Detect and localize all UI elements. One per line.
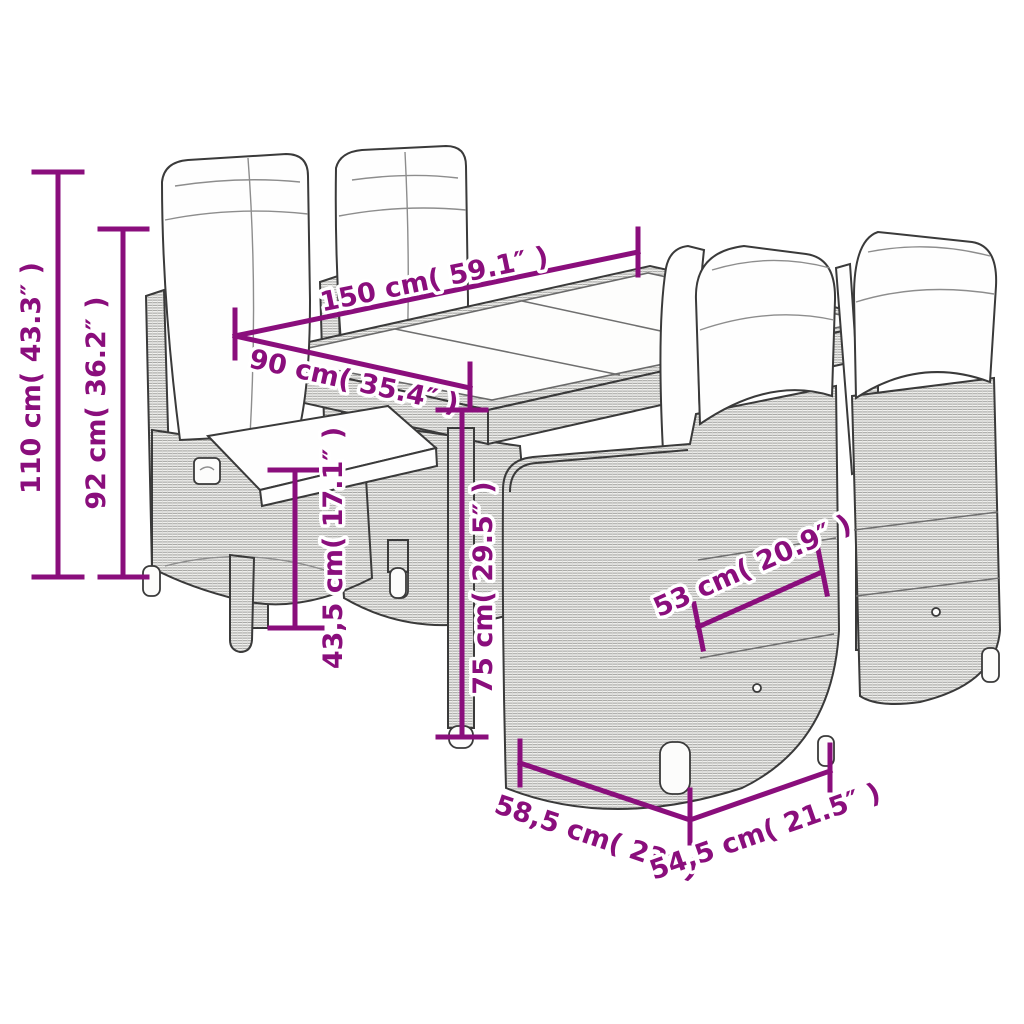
diagram-canvas: 110 cm( 43.3″ ) 92 cm( 36.2″ ) 150 cm( 5… xyxy=(0,0,1024,1024)
furniture-illustration xyxy=(143,146,1000,809)
chair-back-right xyxy=(836,232,1000,704)
dimension-label: 92 cm( 36.2″ ) xyxy=(81,296,112,509)
dimension-backrest-height: 92 cm( 36.2″ ) xyxy=(81,229,147,577)
screw-dot xyxy=(753,684,761,692)
chair-front-left-leg xyxy=(230,555,254,652)
dimension-label: 75 cm( 29.5″ ) xyxy=(468,481,499,694)
dimension-label: 110 cm( 43.3″ ) xyxy=(16,262,47,494)
chair-foot-cap xyxy=(143,566,160,596)
dimension-total-height: 110 cm( 43.3″ ) xyxy=(16,172,82,577)
dimension-diagram: 110 cm( 43.3″ ) 92 cm( 36.2″ ) 150 cm( 5… xyxy=(0,0,1024,1024)
chair-back-right-body xyxy=(852,378,1000,704)
chair-foot-cap xyxy=(660,742,690,794)
screw-dot xyxy=(932,608,940,616)
chair-back-right-cushion xyxy=(854,232,996,398)
chair-foot-cap xyxy=(982,648,999,682)
chair-front-left-back-cushion xyxy=(162,154,310,440)
dimension-label: 43,5 cm( 17.1″ ) xyxy=(318,427,349,669)
chair-foot-cap xyxy=(390,568,406,598)
recline-lever xyxy=(194,458,220,484)
